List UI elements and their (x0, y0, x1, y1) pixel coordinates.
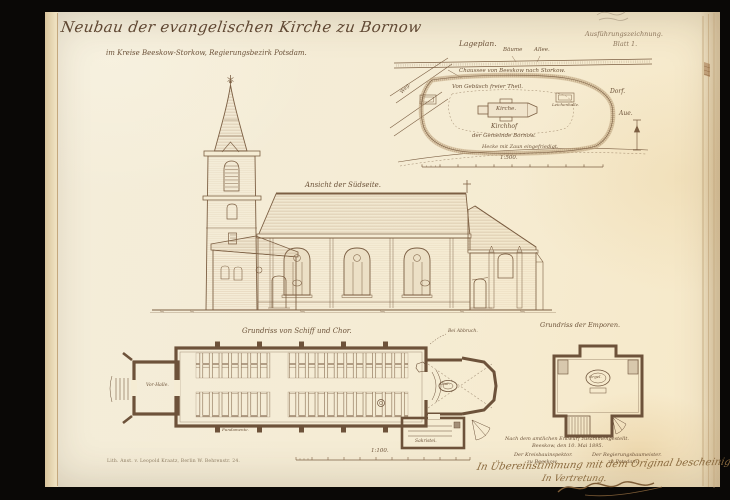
main-scale-label: 1:100. (371, 449, 389, 455)
drawing-linework (0, 0, 730, 500)
site-label-parish: der Gemeinde Bornow. (472, 134, 536, 140)
sheet-number: Blatt 1. (613, 41, 637, 48)
nave-windows (282, 248, 432, 298)
plan-label-note: Bei Abbruch. (448, 330, 478, 335)
plan-label-porch: Vor-Halle. (146, 384, 169, 389)
site-label-clear-area: Von Gebüsch freier Theil. (452, 85, 523, 91)
plan-label-foundation: Fundamente. (222, 428, 249, 432)
sheet-title: Neubau der evangelischen Kirche zu Borno… (60, 20, 423, 36)
site-label-village: Dorf. (610, 89, 625, 95)
scanned-drawing-photo: Neubau der evangelischen Kirche zu Borno… (0, 0, 730, 500)
site-label-morgue: Leichenhalle. (552, 103, 579, 107)
site-label-avenue: Allee. (534, 48, 550, 54)
gallery-plan-title: Grundriss der Emporen. (540, 322, 620, 329)
plan-label-altar: Altar. (439, 382, 450, 386)
plan-label-organ: Orgel. (589, 375, 602, 379)
series-note: Ausführungszeichnung. (585, 31, 663, 38)
approval-line1: Nach dem amtlichen Entwurf zusammengeste… (505, 437, 629, 442)
site-label-church: Kirche. (496, 107, 516, 113)
site-label-meadow: Aue. (619, 111, 633, 117)
sheet-subtitle: im Kreise Beeskow-Storkow, Regierungsbez… (106, 50, 307, 57)
approval-line2: Beeskow, den 10. Mai 1895. (532, 444, 603, 449)
handwritten-deputy-note: In Vertretung. (541, 475, 608, 484)
site-scale-label: 1:500. (500, 156, 518, 162)
main-scale-bar (296, 457, 470, 460)
site-plan-title: Lageplan. (459, 40, 497, 48)
lithographer-imprint: Lith. Anst. v. Leopold Kraatz, Berlin W.… (107, 460, 240, 465)
nave-plan-drawing (110, 334, 496, 448)
site-label-trees: Bäume (503, 48, 522, 54)
porch-elevation (211, 236, 298, 310)
nave-plan-title: Grundriss von Schiff und Chor. (242, 328, 352, 335)
site-scale-bar (422, 164, 603, 167)
approval-left-role: Der Kreisbauinspektor. (514, 453, 573, 458)
plan-label-sacristy: Sakristei. (415, 440, 437, 445)
gallery-plan-drawing (554, 346, 642, 436)
site-label-road: Chaussee von Beeskow nach Storkow. (459, 69, 565, 75)
elevation-title: Ansicht der Südseite. (305, 182, 381, 189)
site-label-churchyard: Kirchhof (491, 124, 517, 130)
north-arrow-icon (633, 120, 641, 150)
pencil-scribble (597, 12, 628, 20)
site-label-hedge: Hecke mit Zaun eingefriedigt. (482, 145, 558, 150)
